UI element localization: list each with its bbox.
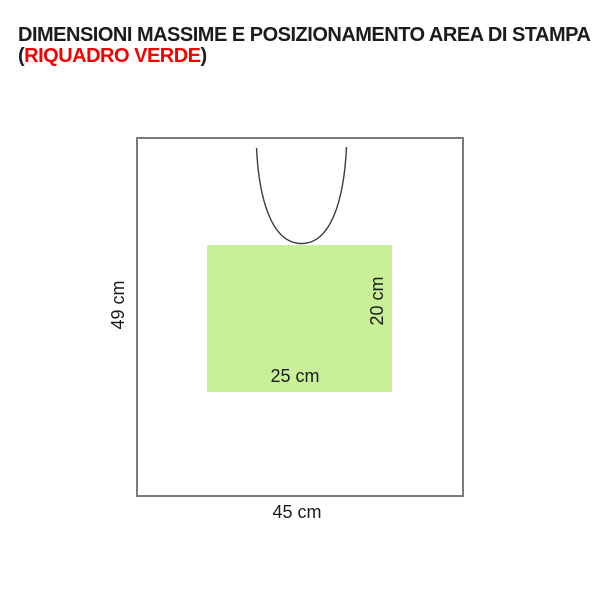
outer-height-label: 49 cm [107,255,129,355]
title-line-1: DIMENSIONI MASSIME E POSIZIONAMENTO AREA… [18,25,590,46]
title-line-2: (RIQUADRO VERDE) [18,46,590,67]
outer-width-label: 45 cm [247,501,347,523]
title-paren-close: ) [201,45,207,67]
page: DIMENSIONI MASSIME E POSIZIONAMENTO AREA… [0,0,600,600]
page-title: DIMENSIONI MASSIME E POSIZIONAMENTO AREA… [18,25,590,67]
print-area-height-label: 20 cm [366,251,388,351]
print-area-width-label: 25 cm [245,365,345,387]
title-highlight: RIQUADRO VERDE [24,45,200,67]
